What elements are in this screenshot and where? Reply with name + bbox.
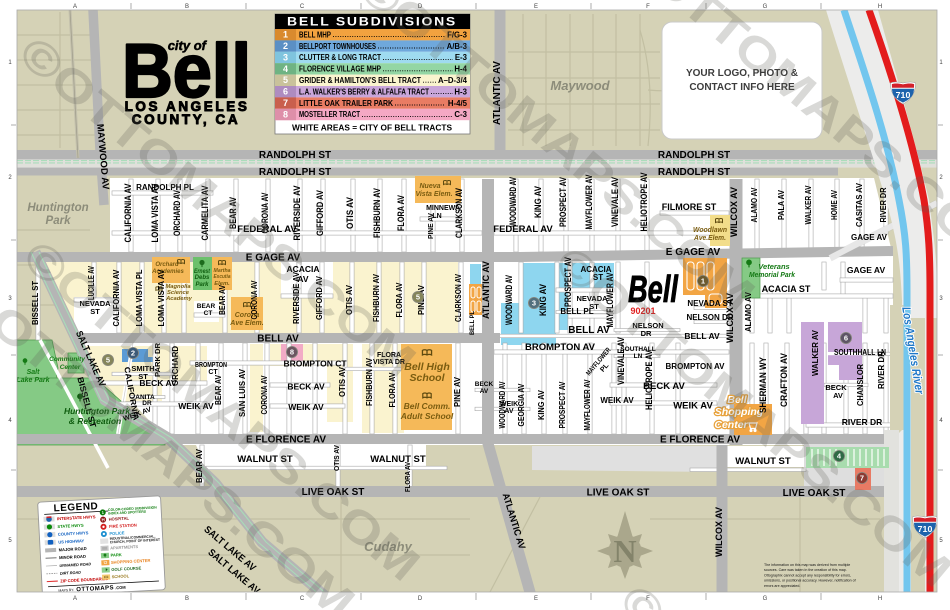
svg-text:WEIK AV: WEIK AV: [288, 402, 324, 412]
svg-text:AV: AV: [480, 388, 489, 395]
svg-text:1: 1: [283, 30, 288, 40]
svg-text:RANDOLPH ST: RANDOLPH ST: [259, 167, 331, 178]
svg-text:FISHBURN AV: FISHBURN AV: [372, 188, 382, 238]
svg-text:OTIS AV: OTIS AV: [337, 367, 347, 397]
svg-text:BEAR: BEAR: [197, 303, 216, 310]
svg-text:CHANSLOR: CHANSLOR: [855, 364, 865, 406]
svg-text:.COM: .COM: [115, 585, 126, 591]
svg-text:G: G: [763, 596, 768, 602]
svg-text:BROMPTON CT: BROMPTON CT: [283, 359, 347, 369]
svg-text:C: C: [300, 4, 305, 10]
svg-text:4: 4: [283, 64, 288, 74]
svg-text:5: 5: [106, 356, 110, 365]
svg-text:CLUTTER & LONG TRACT: CLUTTER & LONG TRACT: [299, 53, 381, 62]
svg-text:WILCOX AV: WILCOX AV: [729, 186, 740, 237]
svg-text:H-4/5: H-4/5: [448, 99, 468, 108]
svg-text:LITTLE OAK TRAILER PARK: LITTLE OAK TRAILER PARK: [299, 99, 393, 108]
svg-text:ALAMO AV: ALAMO AV: [749, 187, 759, 222]
svg-text:D: D: [418, 596, 423, 602]
svg-text:E: E: [534, 4, 538, 10]
svg-text:LN: LN: [432, 213, 441, 220]
svg-text:5: 5: [416, 293, 420, 302]
svg-text:RIVER DR: RIVER DR: [842, 417, 883, 427]
svg-text:BELL MHP: BELL MHP: [299, 30, 331, 39]
svg-text:OTIS AV: OTIS AV: [334, 445, 341, 471]
svg-text:A: A: [73, 596, 77, 602]
svg-text:Adult School: Adult School: [400, 411, 454, 421]
svg-text:6: 6: [283, 87, 288, 97]
svg-text:Vista Elem.: Vista Elem.: [415, 191, 452, 198]
svg-text:FLORA AV: FLORA AV: [405, 462, 412, 492]
svg-text:WOODWARD AV: WOODWARD AV: [504, 275, 514, 325]
svg-text:FLORENCE VILLAGE MHP: FLORENCE VILLAGE MHP: [299, 65, 381, 74]
svg-text:MOSTELLER TRACT: MOSTELLER TRACT: [299, 110, 360, 119]
svg-text:GRIDER & HAMILTON'S BELL TRACT: GRIDER & HAMILTON'S BELL TRACT: [299, 76, 421, 85]
svg-text:FLORA AV: FLORA AV: [396, 195, 406, 231]
svg-text:CRAFTON AV: CRAFTON AV: [779, 352, 790, 407]
svg-text:BECK: BECK: [475, 381, 494, 388]
svg-text:7: 7: [283, 98, 288, 108]
svg-text:BECK AV: BECK AV: [287, 382, 325, 392]
svg-text:Orchard: Orchard: [155, 262, 179, 268]
svg-text:LIVE OAK ST: LIVE OAK ST: [587, 488, 650, 499]
svg-text:PARK: PARK: [110, 552, 122, 558]
svg-text:E FLORENCE AV: E FLORENCE AV: [660, 435, 740, 446]
svg-text:OTIS AV: OTIS AV: [345, 197, 355, 229]
svg-text:Academy: Academy: [165, 296, 193, 302]
svg-text:School: School: [409, 372, 445, 384]
svg-text:CLARKSON AV: CLARKSON AV: [453, 274, 463, 322]
svg-text:PINE AV: PINE AV: [452, 377, 462, 407]
svg-text:HOME AV: HOME AV: [829, 190, 839, 220]
svg-text:WILCOX AV: WILCOX AV: [714, 506, 725, 557]
svg-text:KING AV: KING AV: [536, 390, 546, 420]
svg-text:BELL PL: BELL PL: [469, 311, 476, 335]
svg-text:GAGE AV: GAGE AV: [851, 233, 888, 242]
svg-text:RANDOLPH ST: RANDOLPH ST: [658, 150, 730, 161]
svg-text:WHITE AREAS = CITY OF BELL TRA: WHITE AREAS = CITY OF BELL TRACTS: [292, 123, 452, 133]
svg-text:FLORA AV: FLORA AV: [394, 282, 404, 317]
svg-text:Nueva: Nueva: [419, 183, 440, 190]
svg-text:H: H: [878, 596, 882, 602]
svg-text:errors are appreciated.: errors are appreciated.: [764, 584, 800, 588]
svg-text:3: 3: [532, 299, 536, 308]
svg-text:GIFFORD AV: GIFFORD AV: [315, 190, 325, 236]
svg-text:The information on this map wa: The information on this map was derived …: [764, 563, 850, 567]
svg-text:8: 8: [283, 109, 288, 119]
svg-text:C-3: C-3: [454, 110, 467, 119]
svg-text:LOMA VISTA AV: LOMA VISTA AV: [150, 184, 160, 243]
svg-text:6: 6: [844, 334, 848, 343]
svg-text:KING AV: KING AV: [538, 284, 548, 316]
svg-text:AV: AV: [833, 391, 843, 400]
svg-text:5: 5: [283, 75, 288, 85]
svg-text:3: 3: [283, 52, 288, 62]
svg-text:BELLPORT TOWNHOUSES: BELLPORT TOWNHOUSES: [299, 42, 376, 51]
svg-text:PROSPECT AV: PROSPECT AV: [558, 177, 568, 227]
svg-text:RANDOLPH ST: RANDOLPH ST: [658, 167, 730, 178]
svg-text:N: N: [613, 533, 636, 569]
svg-text:BELL AV: BELL AV: [257, 334, 299, 345]
svg-text:KING AV: KING AV: [533, 186, 543, 218]
svg-text:FEDERAL AV: FEDERAL AV: [493, 224, 553, 235]
svg-text:Debs: Debs: [195, 275, 210, 281]
svg-text:Ave Elem.: Ave Elem.: [229, 320, 264, 327]
svg-text:710: 710: [896, 90, 911, 100]
svg-text:Maywood: Maywood: [550, 78, 610, 93]
svg-text:BROMPTON AV: BROMPTON AV: [525, 342, 596, 353]
svg-text:Huntington: Huntington: [27, 202, 88, 214]
svg-text:WALKER AV: WALKER AV: [803, 185, 813, 224]
svg-text:H: H: [878, 4, 882, 10]
svg-text:WEIK: WEIK: [500, 401, 518, 408]
svg-text:L.A. WALKER'S BERRY & ALFALFA: L.A. WALKER'S BERRY & ALFALFA TRACT: [299, 87, 429, 96]
svg-text:Bell Comm.: Bell Comm.: [404, 401, 451, 411]
svg-text:WEIK AV: WEIK AV: [600, 396, 634, 405]
svg-text:Park: Park: [195, 282, 209, 288]
svg-text:H: H: [101, 517, 105, 522]
svg-text:PALA AV: PALA AV: [776, 190, 786, 220]
svg-text:WOODWARD AV: WOODWARD AV: [508, 177, 518, 227]
svg-text:ATLANTIC AV: ATLANTIC AV: [481, 260, 492, 319]
svg-text:G: G: [763, 4, 768, 10]
svg-text:8: 8: [290, 348, 294, 357]
svg-text:RANDOLPH ST: RANDOLPH ST: [259, 150, 331, 161]
svg-text:A: A: [73, 4, 77, 10]
svg-text:LOMA VISTA AV: LOMA VISTA AV: [156, 269, 166, 326]
svg-text:B: B: [185, 596, 189, 602]
svg-text:SCHOOL: SCHOOL: [111, 573, 129, 579]
svg-text:E: E: [534, 596, 538, 602]
svg-text:WALKER AV: WALKER AV: [810, 330, 820, 376]
svg-text:omissions, or positional accur: omissions, or positional accuracy. Howev…: [764, 579, 856, 583]
svg-text:ACACIA ST: ACACIA ST: [762, 284, 811, 294]
svg-text:B: B: [185, 4, 189, 10]
svg-text:Park: Park: [46, 215, 72, 227]
svg-text:MINNEWA: MINNEWA: [426, 205, 460, 212]
svg-text:MAYFLOWER AV: MAYFLOWER AV: [582, 379, 592, 430]
svg-text:BEAR AV: BEAR AV: [217, 285, 227, 315]
svg-text:GAGE AV: GAGE AV: [847, 265, 886, 275]
svg-text:CT: CT: [204, 310, 213, 317]
svg-text:SOUTHHALL LN: SOUTHHALL LN: [834, 347, 886, 357]
svg-text:WALNUT ST: WALNUT ST: [370, 454, 426, 465]
svg-text:Ottographix cannot accept any: Ottographix cannot accept any responsibi…: [764, 573, 851, 577]
svg-text:sources. Care was taken in the: sources. Care was taken in the creation …: [764, 568, 847, 572]
svg-text:CALIFORNIA AV: CALIFORNIA AV: [123, 184, 133, 243]
svg-text:Escutia: Escutia: [214, 274, 232, 280]
svg-text:F: F: [646, 4, 650, 10]
svg-text:PROSPECT AV: PROSPECT AV: [557, 381, 567, 428]
svg-text:BELL AV: BELL AV: [568, 325, 610, 336]
svg-text:2: 2: [283, 41, 288, 51]
svg-text:AV: AV: [504, 408, 514, 415]
svg-text:CLARKSON AV: CLARKSON AV: [454, 188, 464, 238]
svg-text:CORONA AV: CORONA AV: [249, 280, 259, 319]
svg-text:CASITAS AV: CASITAS AV: [854, 183, 864, 227]
svg-text:VINEVALE AV: VINEVALE AV: [616, 337, 626, 385]
